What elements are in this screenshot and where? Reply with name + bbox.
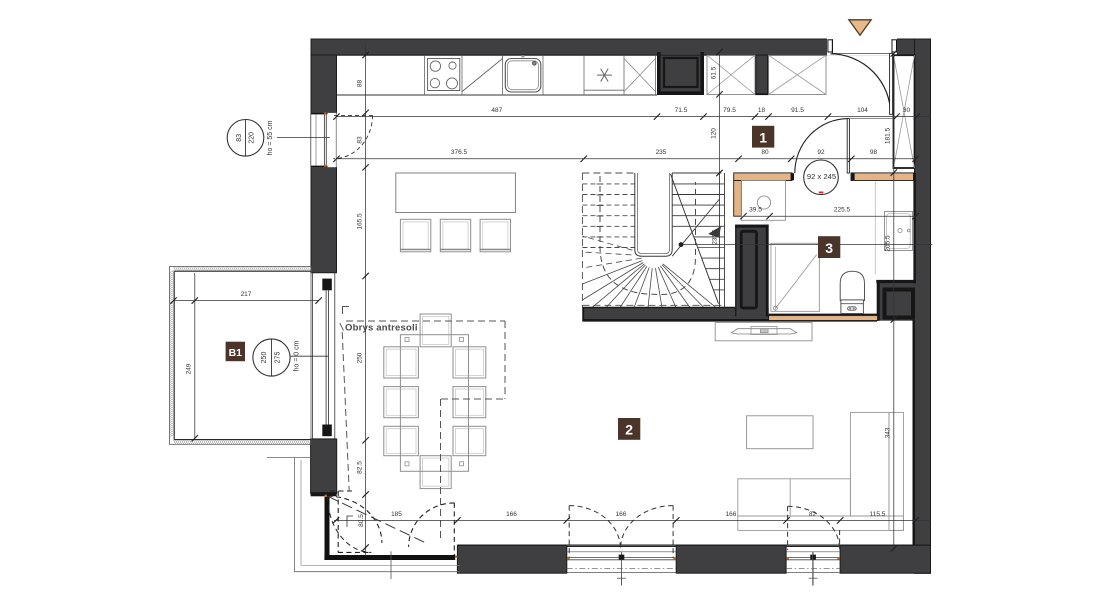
svg-text:3: 3 <box>825 240 833 256</box>
svg-text:250: 250 <box>356 352 363 363</box>
svg-text:92: 92 <box>817 149 825 156</box>
svg-text:88: 88 <box>356 80 363 88</box>
svg-text:275: 275 <box>275 352 282 364</box>
svg-text:30: 30 <box>903 107 911 114</box>
svg-text:ho = 55 cm: ho = 55 cm <box>267 120 274 155</box>
svg-text:B1: B1 <box>229 347 243 359</box>
svg-text:92 x 245: 92 x 245 <box>807 172 836 181</box>
svg-text:83: 83 <box>236 134 243 142</box>
svg-text:91.5: 91.5 <box>791 107 804 114</box>
svg-text:166: 166 <box>506 511 517 518</box>
svg-text:18: 18 <box>758 107 766 114</box>
svg-text:1: 1 <box>759 129 767 145</box>
svg-text:250: 250 <box>261 352 268 364</box>
svg-text:166: 166 <box>616 511 627 518</box>
svg-text:487: 487 <box>491 107 502 114</box>
svg-text:217: 217 <box>241 291 252 298</box>
svg-text:376.5: 376.5 <box>451 149 468 156</box>
svg-text:Obrys antresoli: Obrys antresoli <box>345 323 418 334</box>
svg-text:343: 343 <box>885 427 892 438</box>
svg-text:98: 98 <box>870 149 878 156</box>
svg-text:120: 120 <box>710 128 717 139</box>
svg-text:115.5: 115.5 <box>870 511 886 518</box>
svg-text:220: 220 <box>249 132 256 144</box>
svg-text:185: 185 <box>391 511 402 518</box>
svg-text:235: 235 <box>656 149 667 156</box>
svg-text:79.5: 79.5 <box>723 107 736 114</box>
svg-text:165.5: 165.5 <box>356 213 363 230</box>
svg-text:181.5: 181.5 <box>885 127 892 144</box>
svg-text:80: 80 <box>761 149 769 156</box>
svg-text:39.5: 39.5 <box>749 207 762 214</box>
svg-text:249: 249 <box>186 363 193 374</box>
svg-text:61.5: 61.5 <box>710 66 717 79</box>
svg-text:104: 104 <box>857 107 868 114</box>
svg-text:225.5: 225.5 <box>834 207 851 214</box>
svg-text:71.5: 71.5 <box>675 107 688 114</box>
svg-text:83: 83 <box>356 136 363 144</box>
svg-text:82.5: 82.5 <box>356 461 363 474</box>
svg-text:205.5: 205.5 <box>885 235 892 252</box>
svg-text:235.5: 235.5 <box>713 229 719 245</box>
svg-text:80.5: 80.5 <box>358 514 365 527</box>
svg-text:166: 166 <box>726 511 737 518</box>
svg-text:82: 82 <box>809 511 817 518</box>
svg-text:2: 2 <box>625 422 633 438</box>
